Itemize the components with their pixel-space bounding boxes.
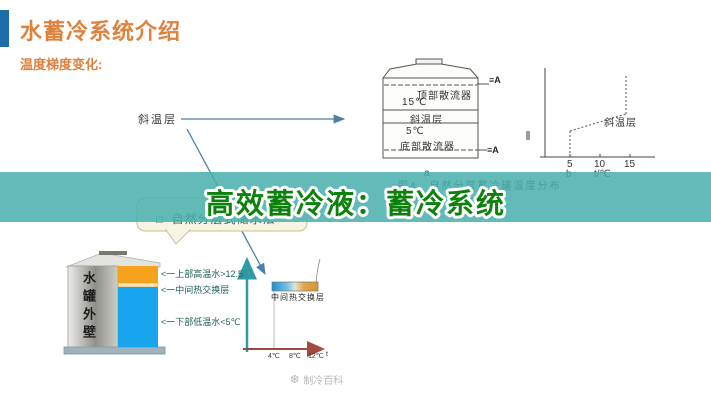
tank-bottom-diffuser-label: 底部散流器 (400, 138, 455, 153)
pipe-connection-bottom: ≡A (487, 145, 499, 155)
mini-tick-12: 12℃ (308, 352, 324, 360)
mini-axis-end-label: t (326, 351, 328, 358)
tank-wall-vertical-label: 水罐外壁 (80, 271, 97, 349)
tank-temp-bottom-label: 5℃ (406, 126, 425, 137)
temperature-graph (526, 68, 655, 157)
watermark: ❆ 制冷百科 (290, 372, 343, 387)
teal-overlay-band (0, 172, 711, 222)
pipe-connection-top: ≡A (489, 75, 501, 85)
graph-tick-15: 15 (624, 159, 635, 170)
tank-thermocline-label: 斜温层 (410, 111, 443, 126)
heat-exchange-chart (243, 259, 321, 352)
lower-cold-water-label: <一下部低温水<5℃ (161, 315, 241, 328)
middle-exchange-layer-label: <一中间热交换层 (161, 283, 229, 296)
graph-curve-label: 斜温层 (604, 114, 637, 129)
heat-exchange-bar-label: 中间热交换层 (271, 292, 325, 303)
watermark-text: 制冷百科 (303, 372, 343, 387)
slide: 水蓄冷系统介绍 温度梯度变化: (0, 0, 711, 400)
thermocline-pointer-label: 斜温层 (138, 111, 177, 127)
mini-tick-4: 4℃ (268, 352, 280, 360)
snowflake-icon: ❆ (290, 373, 299, 386)
upper-warm-water-label: <一上部高温水>12.5 (161, 267, 243, 280)
mini-tick-8: 8℃ (289, 352, 301, 360)
tank-temp-top-label: 15℃ (402, 97, 427, 108)
